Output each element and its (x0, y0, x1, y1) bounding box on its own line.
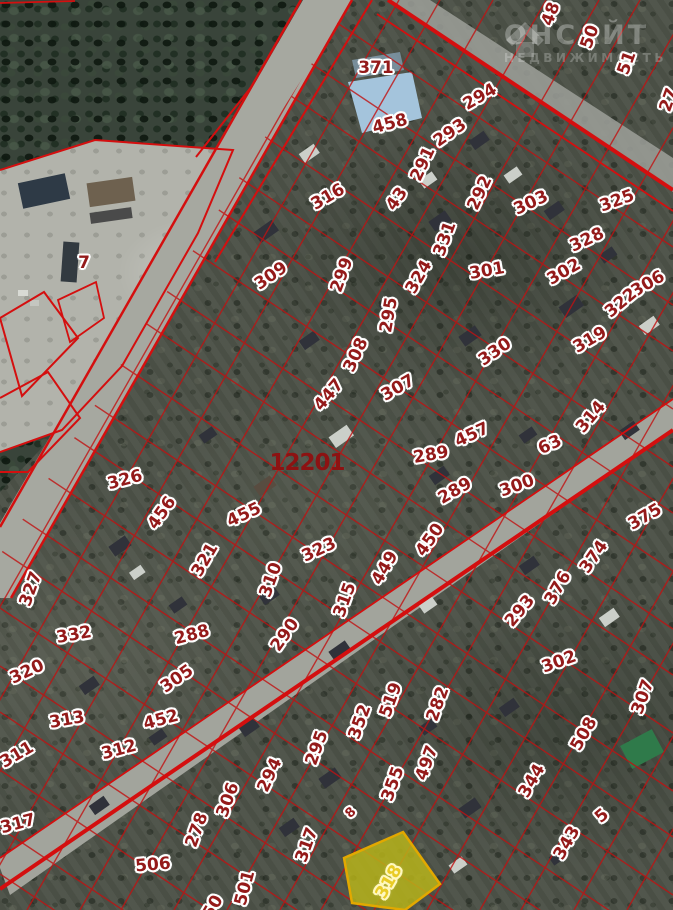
parcel-label[interactable]: 292 (463, 173, 496, 214)
parcel-label[interactable]: 332 (55, 622, 93, 648)
parcel-labels-layer: 4850512737129445829329131643292303325331… (0, 0, 673, 910)
parcel-label[interactable]: 317 (0, 810, 38, 839)
parcel-label[interactable]: 282 (423, 684, 454, 724)
parcel-label[interactable]: 458 (370, 110, 409, 139)
parcel-label[interactable]: 312 (99, 736, 138, 765)
parcel-label[interactable]: 320 (7, 655, 48, 688)
parcel-label[interactable]: 330 (475, 334, 516, 371)
parcel-label[interactable]: 289 (435, 473, 476, 508)
parcel-label[interactable]: 452 (141, 706, 180, 735)
parcel-label[interactable]: 317 (292, 825, 323, 865)
parcel-label[interactable]: 311 (0, 737, 37, 772)
parcel-label[interactable]: 295 (302, 728, 333, 768)
selected-parcel-label[interactable]: 318 (371, 862, 406, 903)
parcel-label[interactable]: 302 (544, 254, 585, 289)
parcel-label[interactable]: 376 (540, 568, 575, 609)
parcel-label[interactable]: 7 (78, 253, 90, 273)
parcel-label[interactable]: 294 (253, 755, 286, 796)
parcel-label[interactable]: 290 (267, 615, 304, 656)
parcel-label[interactable]: 43 (382, 184, 412, 215)
parcel-label[interactable]: 299 (327, 255, 358, 295)
quarter-number-label: 12201 (269, 450, 344, 476)
parcel-label[interactable]: 293 (430, 115, 471, 152)
parcel-label[interactable]: 319 (570, 322, 611, 357)
parcel-label[interactable]: 51 (614, 48, 641, 77)
parcel-label[interactable]: 308 (339, 335, 372, 376)
parcel-label[interactable]: 343 (549, 823, 584, 864)
parcel-label[interactable]: 291 (406, 144, 439, 185)
parcel-label[interactable]: 457 (452, 418, 493, 451)
parcel-label[interactable]: 375 (625, 499, 666, 534)
parcel-label[interactable]: 355 (378, 764, 409, 804)
parcel-label[interactable]: 374 (576, 537, 613, 578)
parcel-label[interactable]: 506 (134, 853, 171, 876)
cadastral-map-canvas[interactable]: ОНСАЙТ НЕДВИЖИМОСТЬ 48505127371294458293… (0, 0, 673, 910)
parcel-label[interactable]: 50 (577, 22, 604, 51)
parcel-label[interactable]: 5 (591, 805, 613, 828)
parcel-label[interactable]: 327 (16, 569, 47, 609)
parcel-label[interactable]: 455 (224, 498, 265, 531)
parcel-label[interactable]: 519 (376, 680, 407, 720)
parcel-label[interactable]: 321 (187, 540, 222, 581)
parcel-label[interactable]: 325 (597, 186, 637, 217)
parcel-label[interactable]: 50 (198, 892, 227, 910)
parcel-label[interactable]: 313 (48, 707, 86, 733)
parcel-label[interactable]: 324 (401, 257, 436, 298)
parcel-label[interactable]: 328 (567, 223, 608, 256)
parcel-label[interactable]: 301 (468, 258, 506, 284)
parcel-label[interactable]: 305 (157, 661, 198, 698)
parcel-label[interactable]: 449 (367, 548, 402, 589)
parcel-label[interactable]: 293 (501, 591, 539, 631)
parcel-label[interactable]: 501 (231, 868, 260, 907)
parcel-label[interactable]: 497 (412, 743, 443, 783)
parcel-label[interactable]: 456 (144, 493, 181, 534)
parcel-label[interactable]: 278 (182, 810, 213, 850)
parcel-label[interactable]: 323 (299, 533, 340, 566)
parcel-label[interactable]: 307 (378, 370, 419, 405)
parcel-label[interactable]: 508 (566, 714, 601, 755)
parcel-label[interactable]: 306 (213, 780, 244, 820)
parcel-label[interactable]: 450 (412, 520, 449, 561)
parcel-label[interactable]: 314 (572, 397, 610, 437)
parcel-label[interactable]: 300 (497, 471, 537, 502)
parcel-label[interactable]: 289 (412, 442, 450, 468)
parcel-label[interactable]: 344 (514, 761, 549, 802)
parcel-label[interactable]: 27 (656, 85, 673, 114)
parcel-label[interactable]: 302 (539, 647, 579, 678)
parcel-label[interactable]: 303 (511, 186, 552, 219)
parcel-label[interactable]: 295 (376, 296, 402, 334)
parcel-label[interactable]: 48 (538, 0, 565, 29)
parcel-label[interactable]: 309 (251, 258, 292, 295)
parcel-label[interactable]: 331 (430, 219, 461, 259)
parcel-label[interactable]: 316 (308, 179, 349, 214)
parcel-label[interactable]: 326 (105, 466, 144, 495)
parcel-label[interactable]: 8 (342, 804, 359, 821)
parcel-label[interactable]: 447 (310, 375, 348, 415)
parcel-label[interactable]: 294 (460, 79, 501, 114)
parcel-label[interactable]: 371 (358, 58, 394, 78)
parcel-label[interactable]: 63 (535, 431, 565, 459)
parcel-label[interactable]: 352 (345, 702, 376, 742)
parcel-label[interactable]: 315 (330, 580, 361, 620)
parcel-label[interactable]: 310 (256, 560, 287, 600)
parcel-label[interactable]: 307 (628, 677, 659, 717)
parcel-label[interactable]: 288 (172, 621, 211, 650)
